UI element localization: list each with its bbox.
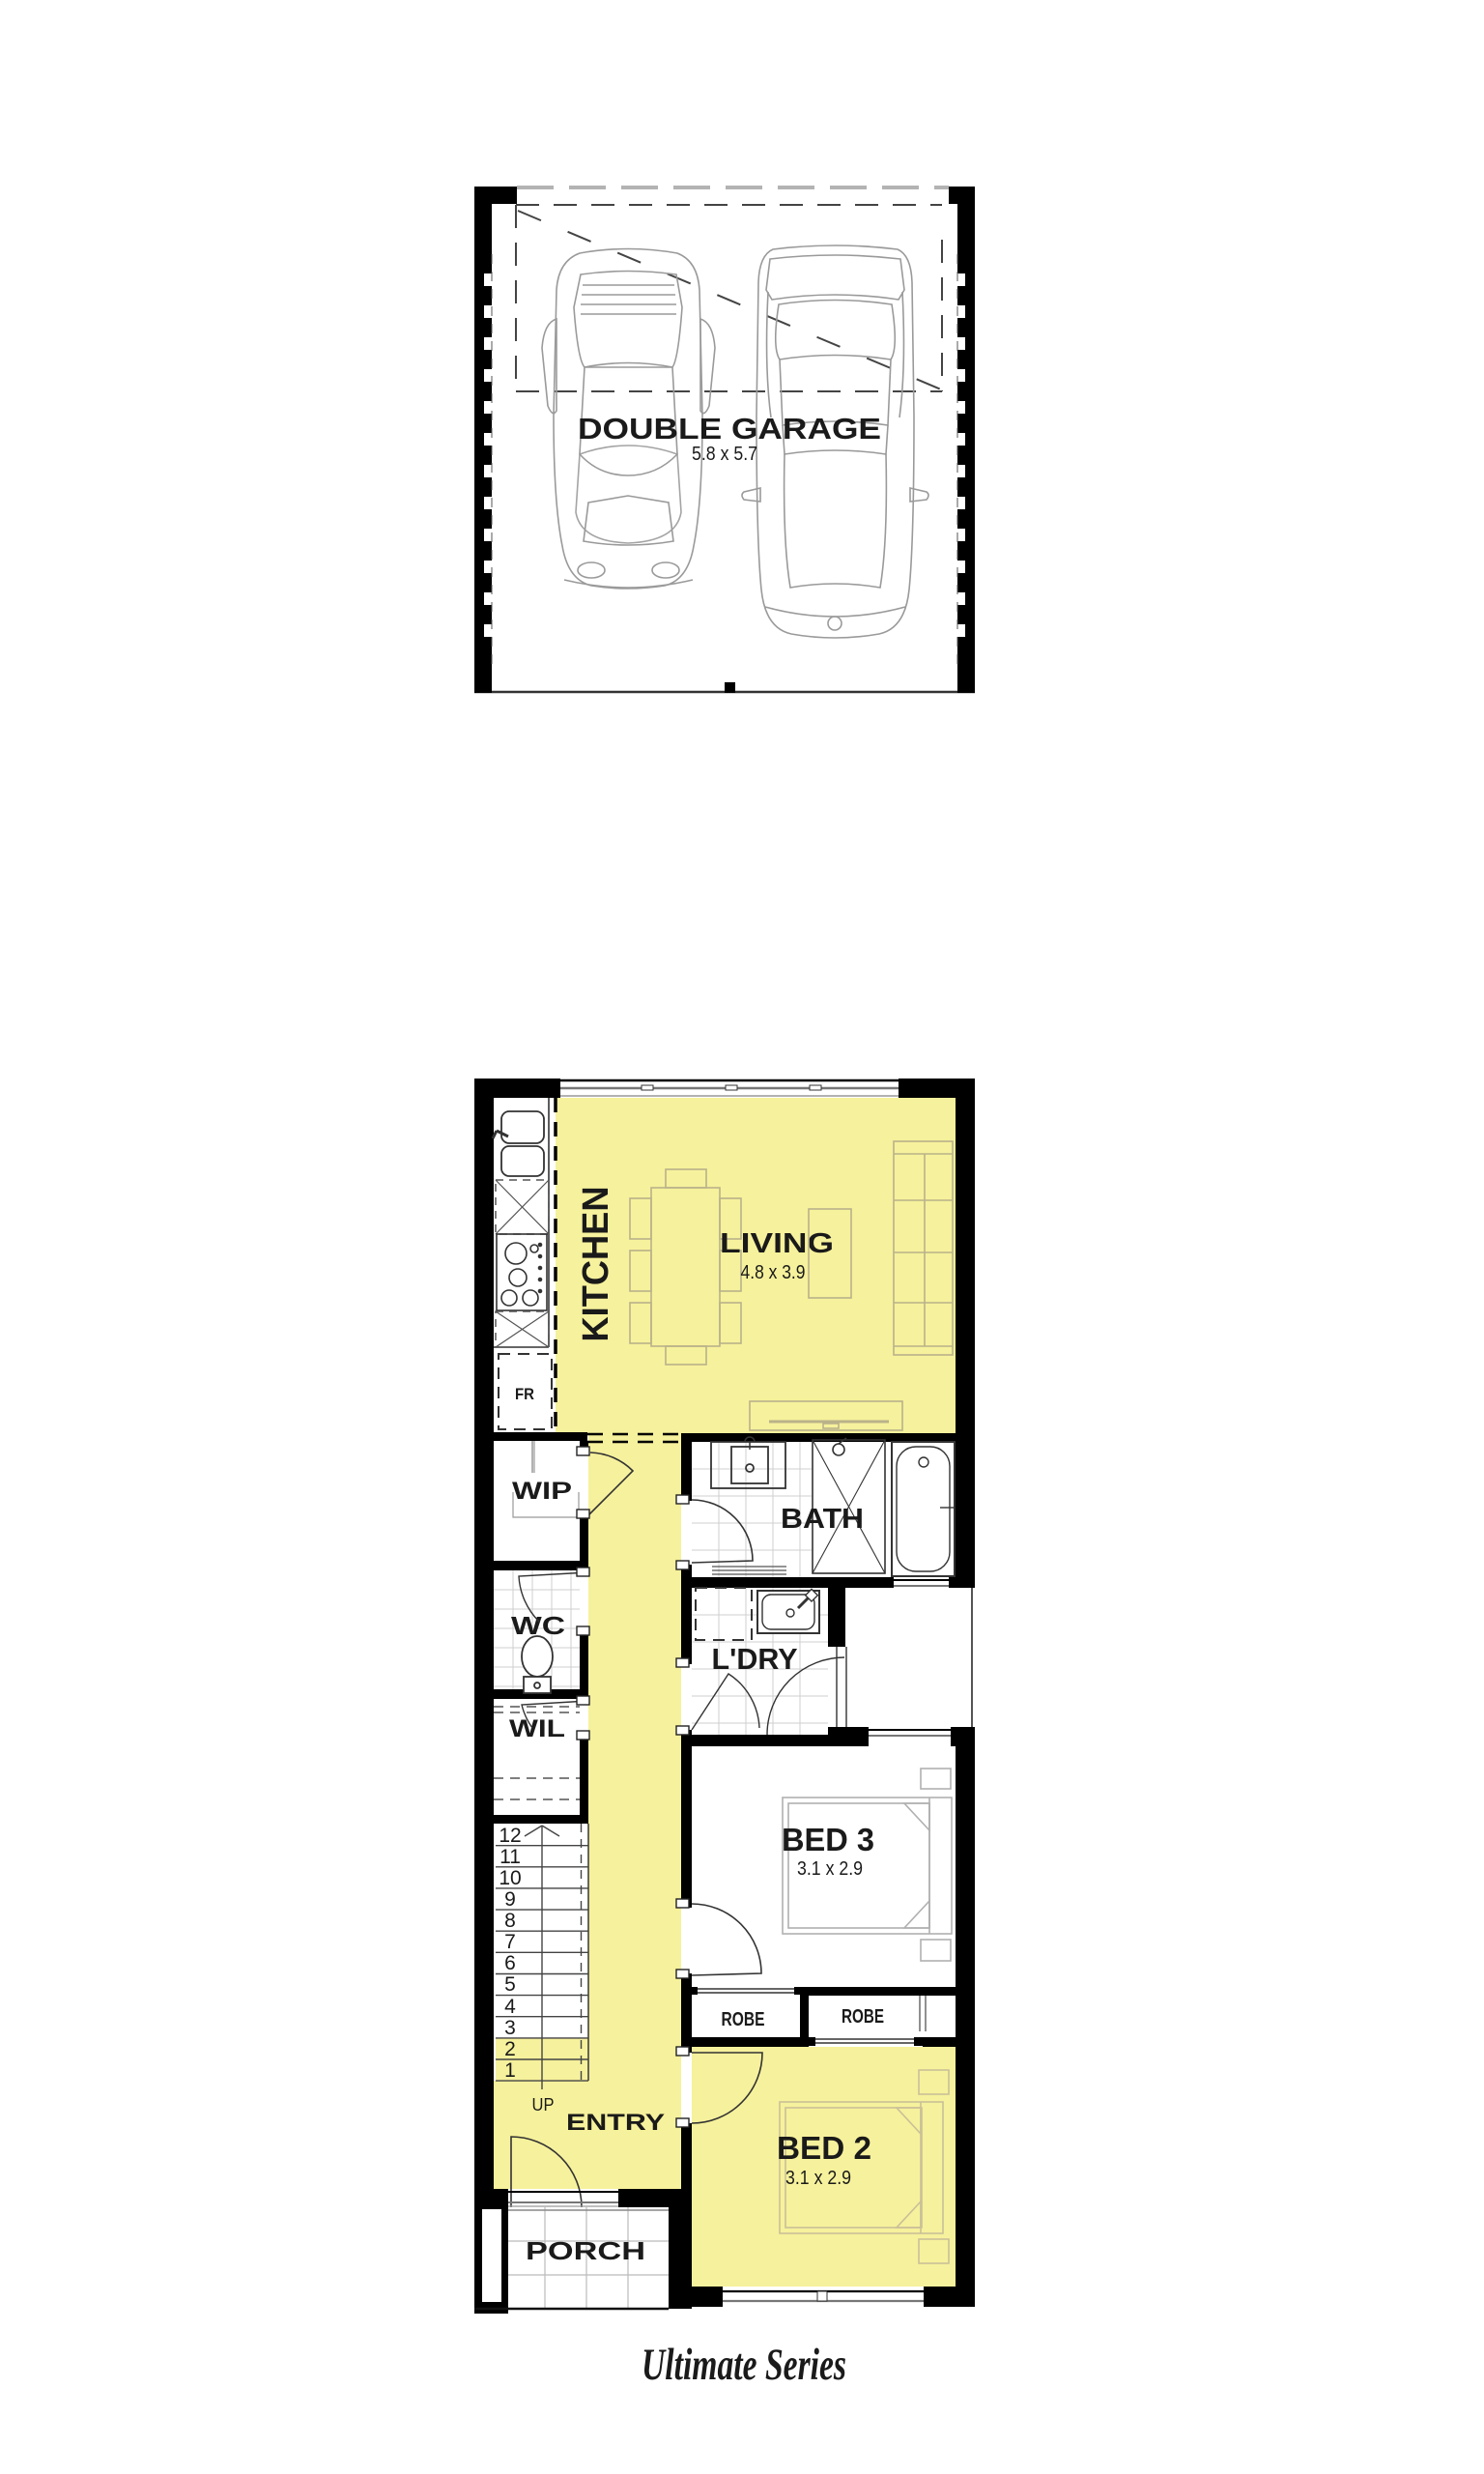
- svg-text:6: 6: [504, 1952, 516, 1974]
- svg-text:LIVING: LIVING: [720, 1228, 834, 1259]
- svg-text:3: 3: [504, 2017, 516, 2039]
- svg-text:BED 2: BED 2: [777, 2130, 871, 2166]
- svg-text:8: 8: [504, 1910, 516, 1932]
- svg-text:3.1 x 2.9: 3.1 x 2.9: [797, 1858, 863, 1880]
- svg-text:FR: FR: [515, 1385, 534, 1403]
- svg-text:1: 1: [504, 2059, 516, 2082]
- svg-text:BATH: BATH: [781, 1504, 864, 1535]
- svg-text:7: 7: [504, 1931, 516, 1953]
- svg-text:9: 9: [504, 1888, 516, 1911]
- svg-text:ENTRY: ENTRY: [566, 2110, 665, 2136]
- svg-text:BED 3: BED 3: [782, 1822, 874, 1857]
- svg-text:UP: UP: [532, 2095, 555, 2114]
- svg-text:2: 2: [504, 2038, 516, 2060]
- svg-text:WIL: WIL: [509, 1715, 565, 1742]
- svg-text:12: 12: [499, 1825, 521, 1847]
- svg-text:5: 5: [504, 1973, 516, 1996]
- svg-text:ROBE: ROBE: [722, 2009, 765, 2030]
- svg-text:5.8 x 5.7: 5.8 x 5.7: [692, 444, 757, 465]
- svg-text:11: 11: [499, 1846, 521, 1868]
- svg-text:4: 4: [504, 1996, 516, 2018]
- svg-text:10: 10: [499, 1867, 521, 1889]
- svg-text:DOUBLE GARAGE: DOUBLE GARAGE: [578, 412, 881, 446]
- svg-text:L'DRY: L'DRY: [712, 1642, 798, 1676]
- svg-text:Ultimate Series: Ultimate Series: [642, 2340, 846, 2390]
- svg-text:WIP: WIP: [512, 1478, 572, 1505]
- svg-text:4.8 x 3.9: 4.8 x 3.9: [741, 1262, 806, 1283]
- svg-text:ROBE: ROBE: [842, 2006, 884, 2028]
- svg-text:KITCHEN: KITCHEN: [576, 1187, 616, 1342]
- svg-text:PORCH: PORCH: [526, 2236, 645, 2265]
- svg-text:3.1 x 2.9: 3.1 x 2.9: [785, 2168, 851, 2189]
